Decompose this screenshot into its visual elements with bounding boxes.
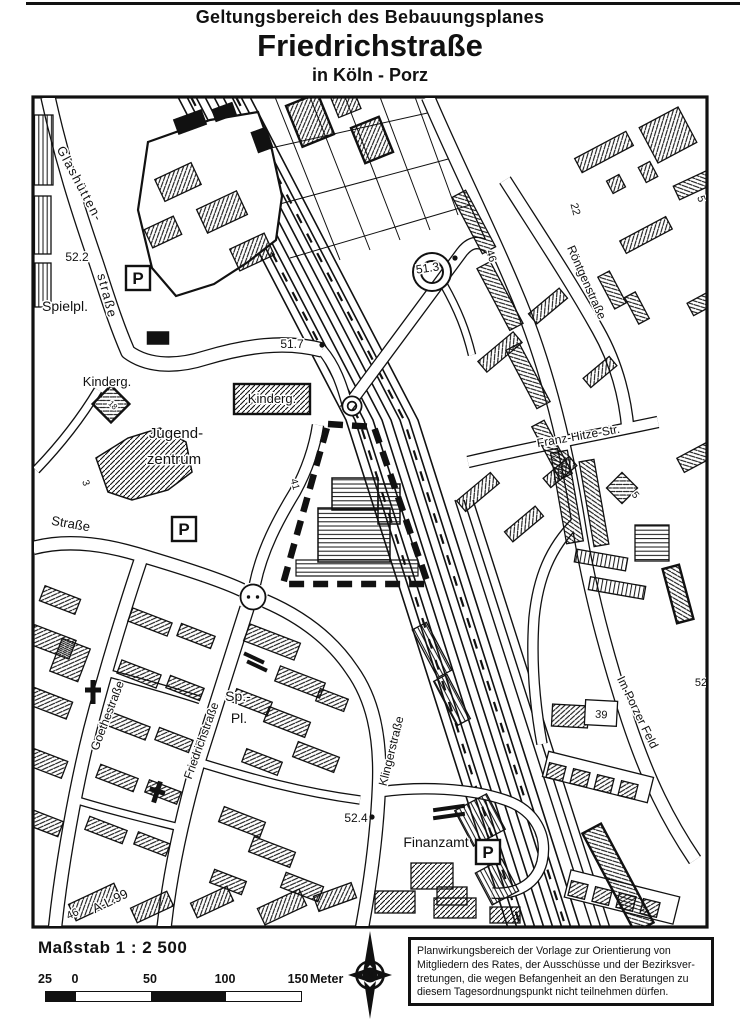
map-label-sp-: Sp.-	[225, 688, 251, 704]
map-label-52-2: 52.2	[65, 250, 89, 264]
map-label-zentrum: zentrum	[147, 451, 201, 468]
map-label-51-7: 51.7	[280, 337, 304, 351]
city-map: PPP Glashütten-straße52.2Spielpl.Kinderg…	[0, 95, 740, 930]
scale-segment	[151, 992, 226, 1001]
map-container: PPP Glashütten-straße52.2Spielpl.Kinderg…	[0, 95, 740, 930]
scale-bar	[45, 991, 302, 1002]
building	[33, 115, 53, 185]
scale-tick-100: 100	[215, 972, 236, 986]
map-label-spielpl-: Spielpl.	[42, 298, 88, 314]
disclaimer-line: Planwirkungsbereich der Vorlage zur Orie…	[417, 945, 705, 959]
disclaimer-line: Mitgliedern des Rates, der Ausschüsse un…	[417, 959, 705, 973]
map-label-finanzamt: Finanzamt	[403, 834, 468, 850]
map-label-jugend-: Jugend-	[149, 425, 203, 442]
building	[411, 863, 453, 889]
parking-letter: P	[178, 520, 189, 539]
building	[147, 332, 169, 345]
map-label-kinderg-: Kinderg.	[83, 374, 131, 389]
scale-segment	[226, 992, 301, 1001]
disclaimer-box: Planwirkungsbereich der Vorlage zur Orie…	[408, 937, 714, 1006]
title-block: Geltungsbereich des Bebauungsplanes Frie…	[0, 8, 740, 85]
compass-north-letter: N	[367, 971, 374, 981]
scale-tick-0: 0	[72, 972, 79, 986]
scale-segment	[76, 992, 151, 1001]
map-label-52-4: 52.4	[344, 811, 368, 825]
parking-letter: P	[132, 269, 143, 288]
page-title: Friedrichstraße	[0, 30, 740, 63]
roundabout	[241, 585, 266, 610]
scale-tick-150: 150	[288, 972, 309, 986]
page: { "header": { "title_line1": "Geltungsbe…	[0, 0, 740, 1024]
parking-letter: P	[482, 843, 493, 862]
building	[434, 898, 476, 918]
map-label-39: 39	[595, 709, 608, 722]
building	[551, 704, 588, 728]
scale-label: Maßstab 1 : 2 500	[38, 938, 187, 958]
disclaimer-line: diesem Tagesordnungspunkt nicht teilnehm…	[417, 986, 705, 1000]
building	[635, 525, 669, 561]
building	[490, 907, 520, 923]
title-line-3: in Köln - Porz	[0, 66, 740, 85]
map-label-pl-: Pl.	[231, 710, 247, 726]
map-label-kinderg-: Kinderg.	[248, 391, 296, 406]
building	[33, 196, 51, 254]
top-rule	[26, 2, 740, 5]
scale-segment	[46, 992, 76, 1001]
scale-tick-25: 25	[38, 972, 52, 986]
compass-rose: N	[346, 929, 394, 1021]
disclaimer-line: tretungen, die wegen Befangenheit an den…	[417, 973, 705, 987]
scale-tick-50: 50	[143, 972, 157, 986]
building	[592, 887, 612, 906]
map-label-52: 52	[695, 677, 707, 689]
building	[618, 781, 638, 800]
building	[594, 775, 614, 794]
building	[570, 769, 590, 788]
building	[568, 881, 588, 900]
building	[546, 763, 566, 782]
title-line-1: Geltungsbereich des Bebauungsplanes	[0, 8, 740, 27]
building	[375, 891, 415, 913]
scale-unit: Meter	[310, 972, 343, 986]
